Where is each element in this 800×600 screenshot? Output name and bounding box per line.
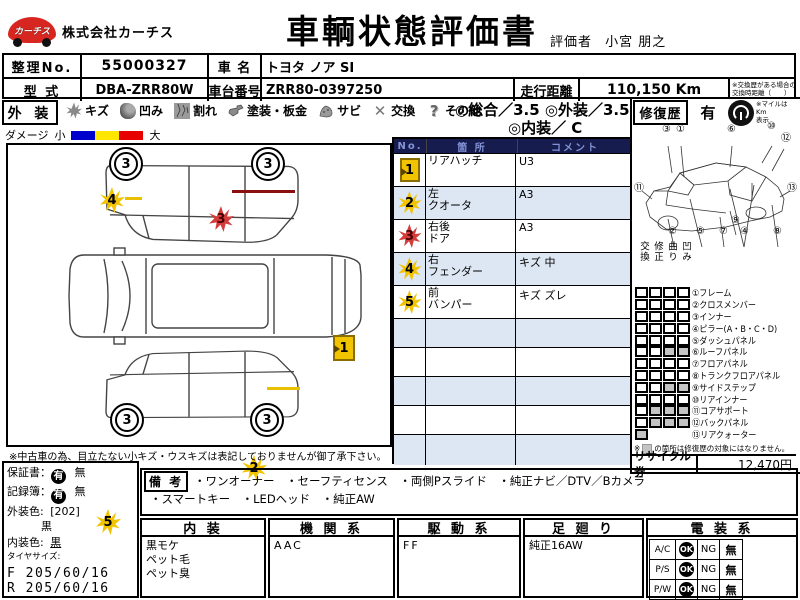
parts-grid-cell: [663, 287, 676, 298]
other-icon: ?: [426, 103, 442, 119]
warranty-yes-badge: 有: [51, 469, 66, 484]
damage-row-empty: [394, 347, 632, 376]
parts-row: ⑩リアインナー: [632, 393, 798, 405]
parts-row: ⑫バックパネル: [632, 417, 798, 429]
callout-6: ⑥: [727, 125, 736, 135]
damage-row-5: 5 前バンパー キズ ズレ: [394, 285, 632, 318]
drivetrain-header: 駆 動 系: [399, 520, 519, 537]
parts-grid-cell: [635, 370, 648, 381]
header-part: 箇 所: [427, 139, 518, 153]
parts-grid-cell: [649, 311, 662, 322]
damage-scale: ダメージ 小 大: [5, 127, 160, 143]
exterior-color-value: 黒: [7, 519, 134, 535]
parts-grid-cell: [677, 311, 690, 322]
parts-grid-cell: [663, 394, 676, 405]
info-no-value: 55000327: [82, 55, 209, 77]
marker-3-right-rear-door: 3: [208, 206, 234, 232]
parts-grid-cell: [635, 417, 648, 428]
tire-grade-front-right: 3: [109, 147, 143, 181]
parts-grid-cell: [649, 358, 662, 369]
parts-grid-cell: [677, 335, 690, 346]
parts-grid-cell: [635, 311, 648, 322]
page-title: 車輌状態評価書: [286, 5, 538, 53]
damage-row-1: 1 リアハッチ U3: [394, 153, 632, 186]
company-name: 株式会社カーチス: [62, 22, 174, 41]
callout-12: ⑫: [781, 134, 791, 144]
tire-grade-rear-right: 3: [251, 147, 285, 181]
header-comment: コメント: [518, 139, 632, 153]
evaluator: 評価者 小宮 朋之: [550, 31, 666, 50]
marker-4-right-fender: 4: [99, 187, 125, 213]
interior-box: 内 装 黒モケ ペット毛 ペット臭: [140, 518, 266, 598]
mile-note: ※マイルは Km 表示: [756, 100, 799, 124]
repair-history-label: 修復歴: [633, 100, 688, 125]
damage-row-1-icon: 1: [400, 158, 420, 182]
parts-grid-cell: [677, 323, 690, 334]
rating-interior: ◎内装／ C: [508, 117, 582, 138]
marker-4-line: [125, 197, 142, 200]
parts-grid-cell: [663, 370, 676, 381]
document-info-box: 保証書：有 無 記録簿：有 無 外装色: [202] 黒 内装色: 黒 タイヤサ…: [2, 461, 139, 598]
damage-scale-small: 小: [54, 127, 65, 143]
remarks-box: 備 考 ・ワンオーナー ・セーフティセンス ・両側Pスライド ・純正ナビ／DTV…: [140, 468, 798, 516]
parts-grid-cell: [663, 335, 676, 346]
legend-scratch-label: キズ: [85, 102, 109, 119]
legend-rust: サビ: [318, 102, 361, 119]
parts-grid-cell: [635, 323, 648, 334]
parts-grid-cell: [649, 346, 662, 357]
parts-grid-cell: [663, 299, 676, 310]
parts-grid-cell: [635, 346, 648, 357]
parts-row: ②クロスメンバー: [632, 299, 798, 311]
parts-row: ⑥ルーフパネル: [632, 346, 798, 358]
callout-8: ⑧: [773, 227, 782, 237]
parts-grid-cell: [649, 335, 662, 346]
callout-13: ⑬: [787, 184, 797, 194]
legend-dent: 凹み: [120, 102, 163, 119]
parts-grid-cell: [649, 299, 662, 310]
parts-grid-cell: [635, 394, 648, 405]
record-yes-badge: 有: [51, 489, 66, 504]
parts-grid-cell: [677, 417, 690, 428]
callout-3: ③: [662, 125, 671, 135]
parts-row: ③インナー: [632, 311, 798, 323]
electrical-row-pw: P/W OK NG 無: [650, 580, 742, 599]
callout-7: ⑦: [719, 227, 728, 237]
parts-grid-cell: [677, 346, 690, 357]
parts-grid-cell: [677, 382, 690, 393]
mileage-note-line1: ※交換歴がある場合の: [732, 81, 792, 89]
parts-grid-cell: [635, 335, 648, 346]
parts-grid-cell: [663, 323, 676, 334]
damage-legend: キズ 凹み 割れ 塗装・板金 サビ ✕ 交換 ? その他: [66, 102, 481, 119]
parts-grid-cell: [663, 358, 676, 369]
pw-ok-badge: OK: [676, 580, 698, 599]
tire-size-rear: R 205/60/16: [7, 581, 134, 597]
remarks-line2: ・スマートキー ・LEDヘッド ・純正AW: [150, 491, 375, 507]
electrical-table: A/C OK NG 無 P/S OK NG 無 P/W OK NG 無: [649, 539, 743, 600]
exterior-color-row: 外装色: [202]: [7, 504, 134, 520]
parts-grid-cell: [677, 370, 690, 381]
electrical-box: 電 装 系 A/C OK NG 無 P/S OK NG 無 P/W OK NG …: [646, 518, 798, 598]
damage-row-empty: [394, 318, 632, 347]
tire-size-label: タイヤサイズ:: [7, 550, 134, 566]
marker-3-line: [232, 190, 295, 193]
legend-rust-label: サビ: [337, 102, 361, 119]
damage-row-4: 4 右フェンダー キズ 中: [394, 252, 632, 285]
info-no-label: 整理No.: [4, 55, 82, 77]
replace-icon: ✕: [372, 103, 388, 119]
parts-grid: ①フレーム ②クロスメンバー ③インナー ④ピラー(A・B・C・D) ⑤ダッシュ…: [632, 287, 798, 440]
tire-grade-front-left: 3: [110, 403, 144, 437]
parts-grid-cell: [663, 417, 676, 428]
engine-value: AAC: [270, 537, 393, 555]
legend-replace: ✕ 交換: [372, 102, 415, 119]
electrical-header: 電 装 系: [648, 520, 796, 537]
scratch-icon: [66, 103, 82, 119]
callout-9: ⑨: [731, 216, 740, 226]
parts-row: ⑦フロアパネル: [632, 358, 798, 370]
parts-grid-cell: [635, 382, 648, 393]
callout-11: ⑪: [634, 184, 644, 194]
crack-icon: [174, 103, 190, 119]
remarks-line1: ・ワンオーナー ・セーフティセンス ・両側Pスライド ・純正ナビ／DTV／Bカメ…: [194, 473, 645, 489]
parts-grid-cell: [663, 311, 676, 322]
damage-row-empty: [394, 376, 632, 405]
damage-row-3: 3 右後ドア A3: [394, 219, 632, 252]
parts-col-replace: 交換: [636, 241, 650, 262]
damage-detail-table: No. 箇 所 コメント 1 リアハッチ U3 2 左クオータ A3 3 右後ド…: [392, 137, 634, 464]
tire-size-front: F 205/60/16: [7, 566, 134, 582]
parts-grid-cell: [635, 429, 648, 440]
parts-col-repair: 修正: [650, 241, 664, 262]
parts-row: ⑪コアサポート: [632, 405, 798, 417]
remarks-label: 備 考: [144, 471, 188, 492]
info-chassis-label: 車台番号: [209, 79, 262, 101]
info-model-value: DBA-ZRR80W: [82, 79, 209, 101]
parts-grid-cell: [635, 358, 648, 369]
parts-grid-cell: [649, 370, 662, 381]
tire-grade-rear-left: 3: [250, 403, 284, 437]
evaluator-label: 評価者: [550, 35, 592, 50]
damage-row-5-icon: 5: [398, 290, 422, 314]
parts-grid-cell: [649, 417, 662, 428]
parts-grid-cell: [649, 405, 662, 416]
exterior-section-label: 外 装: [2, 100, 58, 125]
record-book-row: 記録簿：有 無: [7, 484, 134, 503]
callout-5: ⑤: [696, 227, 705, 237]
legend-crack-label: 割れ: [193, 102, 217, 119]
callout-10: ⑩: [767, 122, 776, 132]
suspension-header: 足 廻 り: [525, 520, 642, 537]
parts-grid-cell: [663, 405, 676, 416]
parts-grid-cell: [677, 299, 690, 310]
drivetrain-value: FF: [399, 537, 519, 555]
parts-row: ④ピラー(A・B・C・D): [632, 322, 798, 334]
rust-icon: [318, 103, 334, 119]
vehicle-info-table: 整理No. 55000327 車 名 トヨタ ノア SI 型 式 DBA-ZRR…: [2, 53, 796, 99]
legend-scratch: キズ: [66, 102, 109, 119]
car-top-view: [64, 251, 364, 341]
damage-row-3-icon: 3: [398, 224, 422, 248]
electrical-row-ps: P/S OK NG 無: [650, 560, 742, 580]
damage-scale-large: 大: [149, 127, 160, 143]
logo-text: カーチス: [8, 24, 56, 37]
info-name-label: 車 名: [209, 55, 262, 77]
suspension-box: 足 廻 り 純正16AW: [523, 518, 644, 598]
parts-grid-cell: [649, 394, 662, 405]
damage-row-empty: [394, 405, 632, 434]
legend-paint-label: 塗装・板金: [247, 102, 307, 119]
interior-color-row: 内装色: 黒: [7, 535, 134, 551]
engine-header: 機 関 系: [270, 520, 393, 537]
repair-history-value: 有: [688, 100, 728, 125]
parts-grid-cell: [635, 299, 648, 310]
parts-col-dent: 凹み: [678, 241, 692, 262]
electrical-row-ac: A/C OK NG 無: [650, 540, 742, 560]
evaluator-name: 小宮 朋之: [605, 35, 666, 50]
vehicle-condition-report: カーチス 株式会社カーチス 車輌状態評価書 評価者 小宮 朋之 整理No. 55…: [0, 0, 800, 600]
parts-grid-cell: [677, 405, 690, 416]
parts-row: ⑨サイドステップ: [632, 381, 798, 393]
damage-row-4-icon: 4: [398, 257, 422, 281]
curtis-logo-icon: カーチス: [8, 15, 56, 46]
frame-skeleton-diagram: [632, 143, 800, 255]
parts-row: ①フレーム: [632, 287, 798, 299]
info-mileage-label: 走行距離: [515, 79, 580, 101]
info-model-label: 型 式: [4, 79, 82, 101]
parts-grid-cell: [677, 358, 690, 369]
damage-row-empty: [394, 434, 632, 465]
parts-grid-cell: [649, 382, 662, 393]
parts-grid-cell: [677, 287, 690, 298]
interior-header: 内 装: [142, 520, 264, 537]
paint-icon: [228, 103, 244, 119]
damage-table-header: No. 箇 所 コメント: [394, 139, 632, 153]
marker-1-rear-hatch: 1: [333, 335, 355, 361]
interior-line1: 黒モケ: [146, 539, 260, 553]
parts-grid-cell: [649, 323, 662, 334]
parts-row: ⑬リアクォーター: [632, 429, 798, 441]
parts-row: ⑧トランクフロアパネル: [632, 370, 798, 382]
marker-2-line: [267, 387, 300, 390]
parts-grid-cell: [649, 287, 662, 298]
legend-paint: 塗装・板金: [228, 102, 307, 119]
damage-scale-label: ダメージ: [5, 127, 48, 143]
damage-row-2: 2 左クオータ A3: [394, 186, 632, 219]
parts-col-bend: 曲り: [664, 241, 678, 262]
parts-grid-cell: [663, 346, 676, 357]
legend-dent-label: 凹み: [139, 102, 163, 119]
repair-history-panel: 修復歴 有 ※マイルは Km 表示: [630, 97, 800, 474]
callout-1: ①: [676, 125, 685, 135]
parts-grid-cell: [635, 405, 648, 416]
parts-grid-cell: [635, 287, 648, 298]
suspension-value: 純正16AW: [525, 537, 642, 555]
callout-2: ②: [668, 227, 677, 237]
parts-grid-cell: [663, 382, 676, 393]
parts-row: ⑤ダッシュパネル: [632, 334, 798, 346]
info-chassis-value: ZRR80-0397250: [262, 79, 515, 101]
odometer-icon: [728, 100, 754, 126]
drivetrain-box: 駆 動 系 FF: [397, 518, 521, 598]
interior-line2: ペット毛: [146, 553, 260, 567]
info-name-value: トヨタ ノア SI: [262, 55, 794, 77]
dent-icon: [120, 103, 136, 119]
mileage-note-line2: 交換時距離（ ）: [732, 89, 792, 97]
damage-row-2-icon: 2: [398, 191, 422, 215]
ps-ok-badge: OK: [676, 560, 698, 579]
parts-grid-cell: [677, 394, 690, 405]
ac-ok-badge: OK: [676, 540, 698, 559]
damage-scale-bar: [71, 131, 143, 140]
car-diagram-panel: 3 3 4 3 1: [6, 143, 392, 447]
legend-replace-label: 交換: [391, 102, 415, 119]
engine-box: 機 関 系 AAC: [268, 518, 395, 598]
interior-line3: ペット臭: [146, 567, 260, 581]
callout-4: ④: [740, 227, 749, 237]
header-no: No.: [394, 139, 427, 153]
legend-crack: 割れ: [174, 102, 217, 119]
warranty-row: 保証書：有 無: [7, 465, 134, 484]
